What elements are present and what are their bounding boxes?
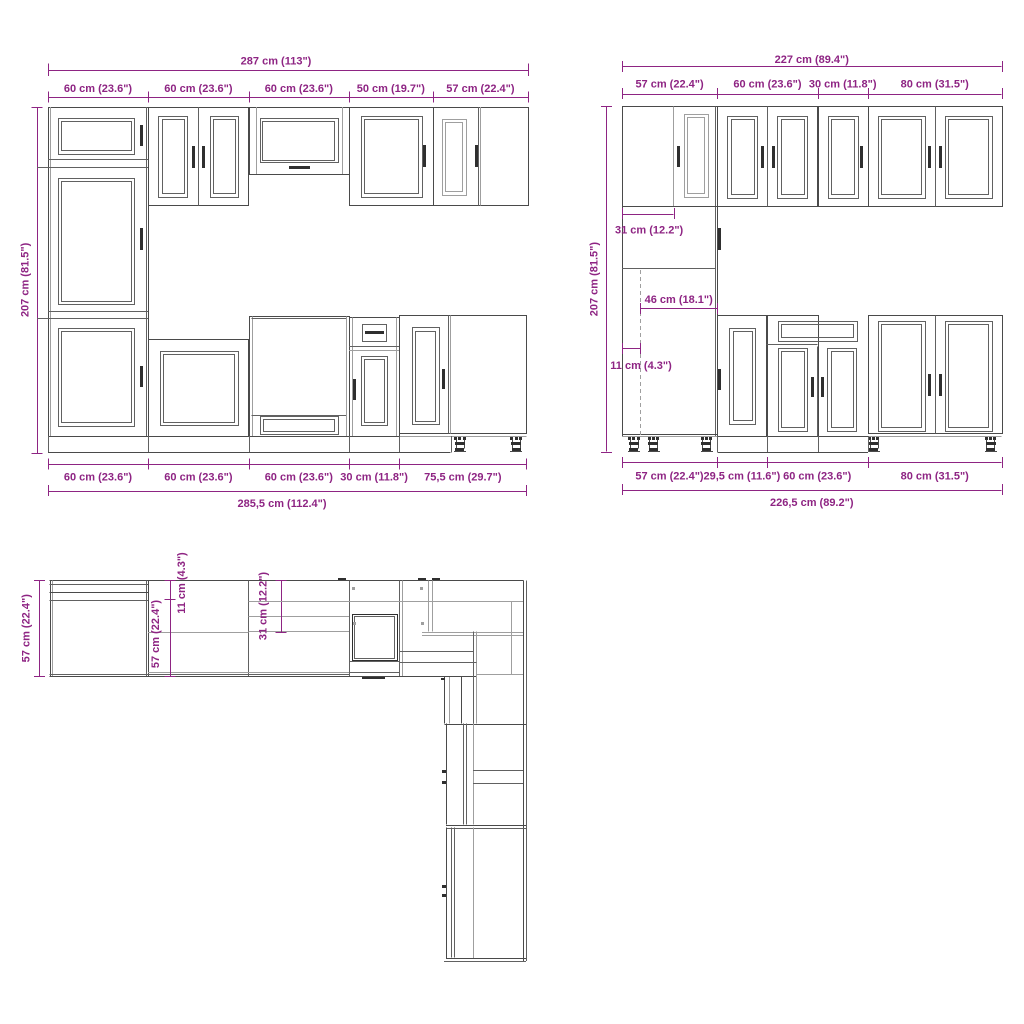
svg-text:11 cm (4.3"): 11 cm (4.3") xyxy=(176,552,188,614)
svg-text:30 cm (11.8"): 30 cm (11.8") xyxy=(340,472,408,484)
svg-text:30 cm (11.8"): 30 cm (11.8") xyxy=(809,79,877,91)
svg-text:11 cm (4.3"): 11 cm (4.3") xyxy=(610,360,672,372)
svg-text:285,5 cm (112.4"): 285,5 cm (112.4") xyxy=(238,498,327,510)
svg-text:287 cm (113"): 287 cm (113") xyxy=(241,56,312,68)
svg-text:57 cm (22.4"): 57 cm (22.4") xyxy=(150,600,162,669)
svg-text:50 cm (19.7"): 50 cm (19.7") xyxy=(357,83,426,95)
svg-text:60 cm (23.6"): 60 cm (23.6") xyxy=(733,79,802,91)
svg-text:46 cm (18.1"): 46 cm (18.1") xyxy=(645,294,714,306)
svg-text:57 cm (22.4"): 57 cm (22.4") xyxy=(635,471,704,483)
svg-text:207 cm (81.5"): 207 cm (81.5") xyxy=(20,242,32,317)
svg-text:80 cm (31.5"): 80 cm (31.5") xyxy=(901,79,970,91)
svg-text:60 cm (23.6"): 60 cm (23.6") xyxy=(265,472,334,484)
svg-text:31 cm (12.2"): 31 cm (12.2") xyxy=(615,225,684,237)
svg-text:57 cm (22.4"): 57 cm (22.4") xyxy=(446,83,515,95)
svg-text:31 cm (12.2"): 31 cm (12.2") xyxy=(258,572,270,641)
svg-text:60 cm (23.6"): 60 cm (23.6") xyxy=(164,83,233,95)
svg-text:60 cm (23.6"): 60 cm (23.6") xyxy=(265,83,334,95)
svg-text:57 cm (22.4"): 57 cm (22.4") xyxy=(21,594,33,663)
svg-text:29,5 cm (11.6"): 29,5 cm (11.6") xyxy=(704,471,781,483)
svg-text:207 cm (81.5"): 207 cm (81.5") xyxy=(589,242,601,317)
svg-text:60 cm (23.6"): 60 cm (23.6") xyxy=(64,472,133,484)
svg-text:227 cm (89.4"): 227 cm (89.4") xyxy=(775,54,850,66)
svg-text:75,5 cm (29.7"): 75,5 cm (29.7") xyxy=(424,472,502,484)
svg-text:80 cm (31.5"): 80 cm (31.5") xyxy=(901,471,970,483)
svg-text:226,5 cm (89.2"): 226,5 cm (89.2") xyxy=(770,497,854,509)
svg-text:60 cm (23.6"): 60 cm (23.6") xyxy=(64,83,133,95)
svg-text:60 cm (23.6"): 60 cm (23.6") xyxy=(783,471,852,483)
svg-text:57 cm (22.4"): 57 cm (22.4") xyxy=(635,79,704,91)
svg-text:60 cm (23.6"): 60 cm (23.6") xyxy=(164,472,233,484)
